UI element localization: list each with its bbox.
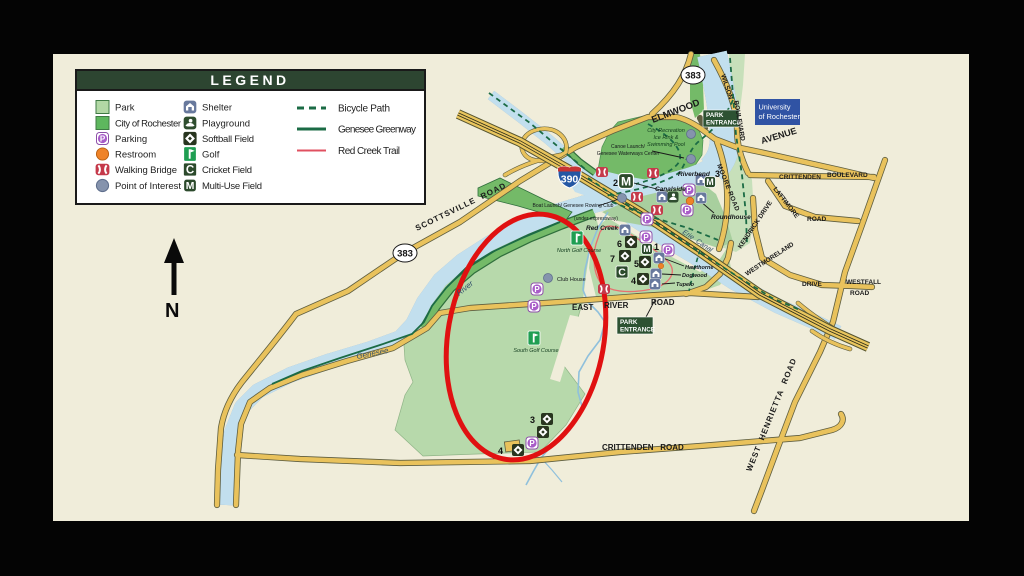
svg-text:North Golf Course: North Golf Course	[557, 248, 601, 254]
svg-text:ROAD: ROAD	[651, 298, 675, 307]
svg-text:390: 390	[561, 174, 579, 186]
svg-text:Genesee Greenway: Genesee Greenway	[338, 125, 416, 136]
svg-text:BOULEVARD: BOULEVARD	[827, 172, 868, 179]
svg-text:Tupelo: Tupelo	[676, 282, 695, 288]
svg-text:N: N	[165, 300, 179, 322]
svg-text:DRIVE: DRIVE	[802, 281, 823, 288]
svg-text:7: 7	[610, 254, 615, 264]
svg-text:Genesee Waterways Center: Genesee Waterways Center	[597, 151, 660, 157]
svg-text:PARK: PARK	[620, 319, 638, 326]
svg-text:Playground: Playground	[202, 119, 250, 130]
svg-text:Cricket Field: Cricket Field	[202, 165, 252, 176]
svg-text:Multi-Use Field: Multi-Use Field	[202, 181, 262, 192]
svg-text:ENTRANCE: ENTRANCE	[620, 327, 655, 334]
svg-text:Swimming Pool: Swimming Pool	[647, 142, 686, 148]
svg-text:Hawthorne: Hawthorne	[685, 265, 713, 271]
svg-text:383: 383	[685, 71, 701, 82]
svg-text:Point of Interest: Point of Interest	[115, 181, 181, 192]
svg-text:3: 3	[530, 415, 535, 425]
svg-text:Red Creek Trail: Red Creek Trail	[338, 146, 400, 157]
svg-text:South Golf Course: South Golf Course	[513, 348, 558, 354]
svg-text:LEGEND: LEGEND	[210, 72, 289, 88]
svg-text:Roundhouse: Roundhouse	[711, 214, 751, 221]
svg-text:6: 6	[617, 239, 622, 249]
svg-text:Canalside: Canalside	[655, 186, 686, 193]
svg-text:4: 4	[498, 446, 503, 456]
svg-text:Boat Launch/ Genesee Rowing Cl: Boat Launch/ Genesee Rowing Club	[533, 203, 614, 209]
svg-text:CRITTENDEN ROAD: CRITTENDEN ROAD	[602, 443, 684, 452]
svg-text:WESTFALL: WESTFALL	[846, 279, 881, 286]
svg-text:Canoe Launch/: Canoe Launch/	[611, 144, 646, 150]
svg-text:Dogwood: Dogwood	[682, 273, 708, 279]
svg-text:CRITTENDEN: CRITTENDEN	[779, 174, 821, 181]
svg-text:383: 383	[397, 249, 413, 260]
svg-text:City of Rochester: City of Rochester	[115, 119, 181, 130]
svg-text:Golf: Golf	[202, 150, 220, 161]
svg-text:ROAD: ROAD	[850, 290, 869, 297]
svg-text:of Rochester: of Rochester	[759, 112, 801, 121]
svg-text:Bicycle Path: Bicycle Path	[338, 104, 390, 115]
svg-text:Club House: Club House	[557, 277, 586, 283]
svg-text:(under expressway): (under expressway)	[574, 216, 618, 222]
svg-text:2: 2	[613, 178, 618, 188]
svg-text:Walking Bridge: Walking Bridge	[115, 165, 177, 176]
svg-text:PARK: PARK	[706, 112, 724, 119]
svg-text:Parking: Parking	[115, 134, 147, 145]
svg-text:Ice Rink &: Ice Rink &	[653, 135, 678, 141]
svg-text:Shelter: Shelter	[202, 103, 232, 114]
svg-text:RIVER: RIVER	[604, 301, 629, 310]
svg-text:City Recreation: City Recreation	[647, 128, 685, 134]
svg-text:Softball Field: Softball Field	[202, 134, 254, 145]
svg-text:5: 5	[634, 259, 639, 269]
svg-text:Restroom: Restroom	[115, 150, 156, 161]
svg-text:Red Creek: Red Creek	[586, 225, 619, 232]
svg-text:Park: Park	[115, 103, 135, 114]
svg-text:4: 4	[631, 276, 636, 286]
svg-text:1: 1	[654, 242, 659, 252]
svg-text:Riverbend: Riverbend	[678, 171, 711, 178]
svg-text:ROAD: ROAD	[807, 216, 826, 223]
svg-text:University: University	[759, 103, 791, 112]
svg-text:EAST: EAST	[572, 303, 593, 312]
